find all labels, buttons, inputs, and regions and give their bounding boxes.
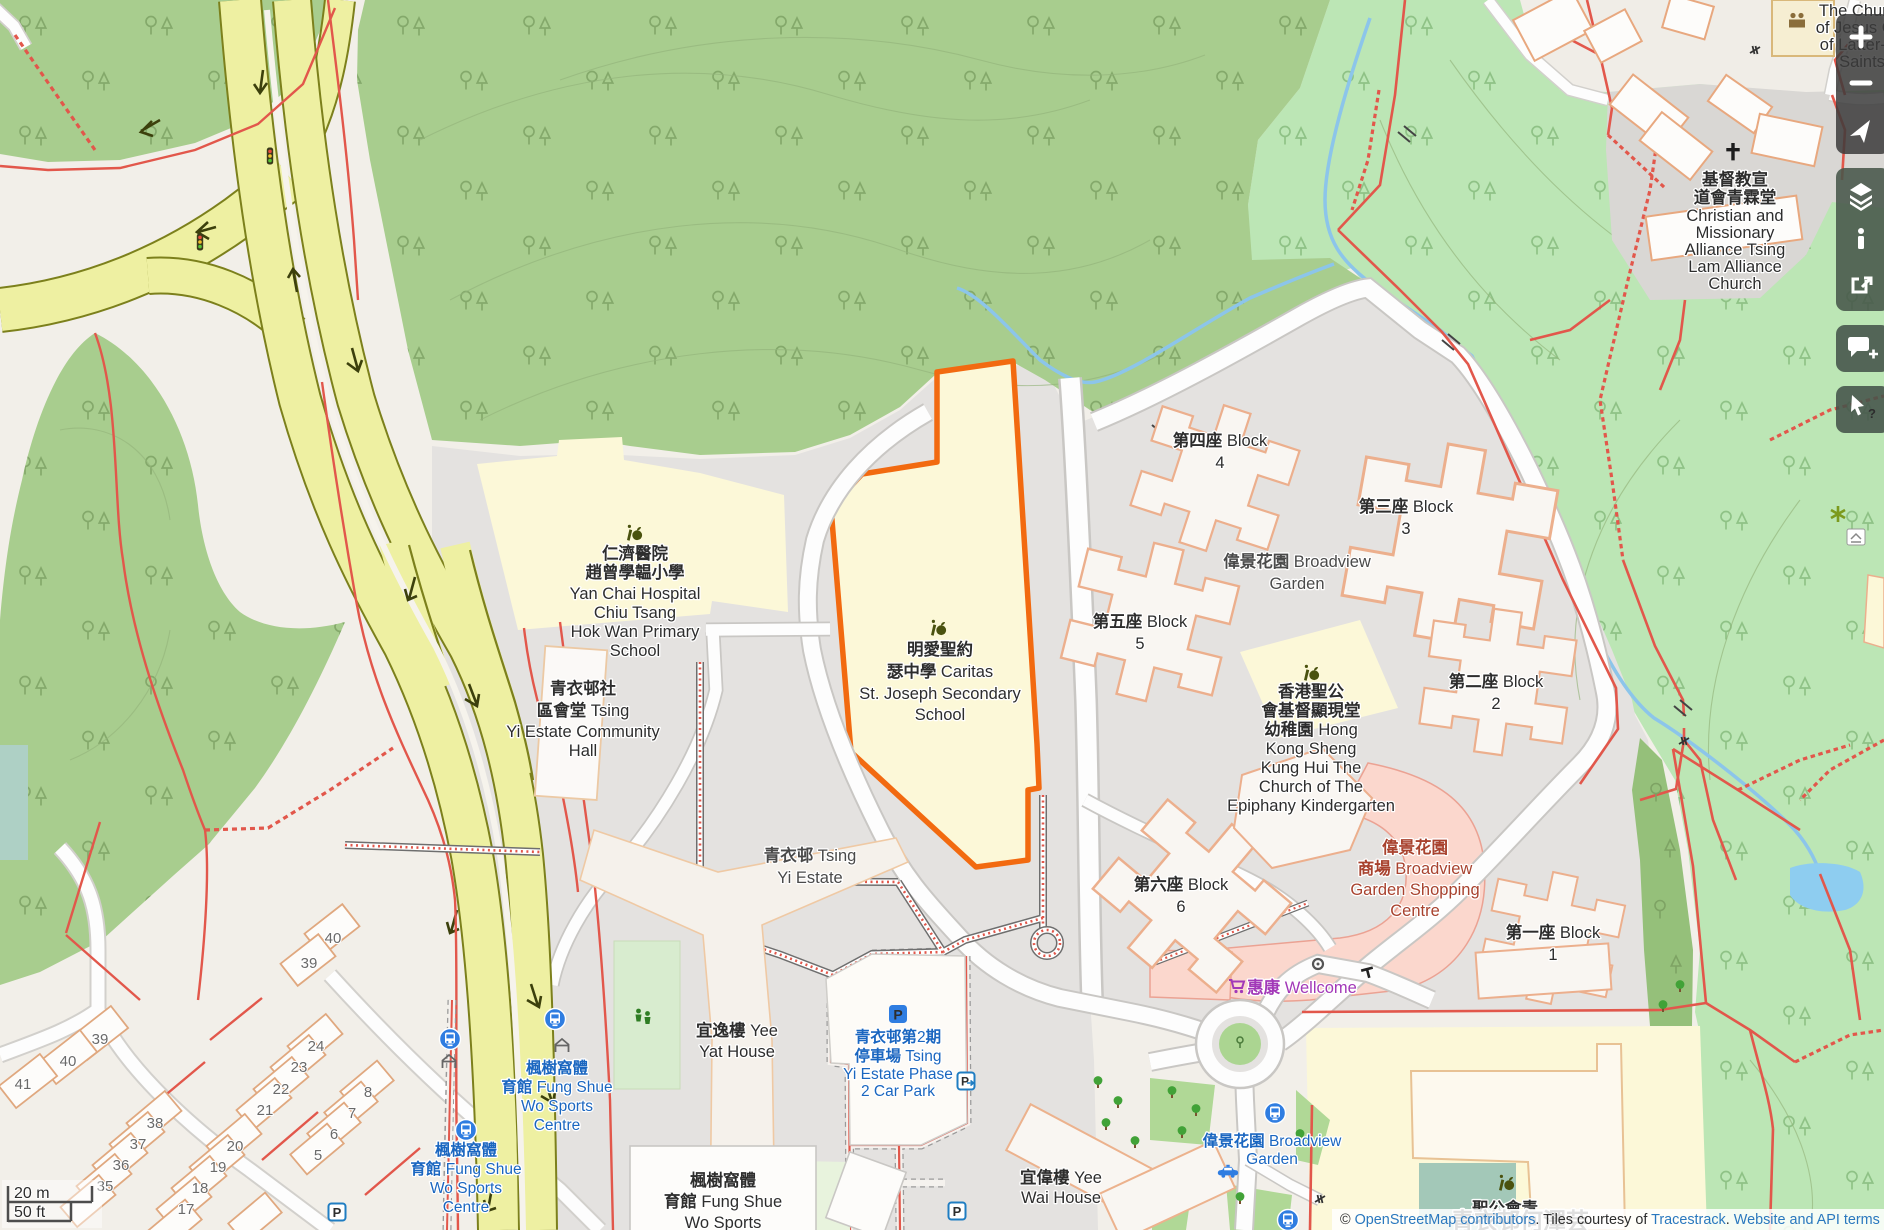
svg-text:楓樹窩體: 楓樹窩體 bbox=[690, 1170, 757, 1190]
svg-text:第五座 Block: 第五座 Block bbox=[1093, 611, 1188, 631]
svg-text:宜逸樓 Yee: 宜逸樓 Yee bbox=[696, 1020, 778, 1040]
svg-text:4: 4 bbox=[1215, 454, 1224, 472]
svg-text:青衣邨第2期: 青衣邨第2期 bbox=[855, 1027, 941, 1046]
svg-text:宜偉樓 Yee: 宜偉樓 Yee bbox=[1020, 1167, 1102, 1187]
svg-text:青衣邨 Tsing: 青衣邨 Tsing bbox=[764, 845, 857, 865]
svg-text:停車場 Tsing: 停車場 Tsing bbox=[854, 1046, 941, 1065]
svg-text:商場 Broadview: 商場 Broadview bbox=[1358, 858, 1473, 878]
svg-text:8: 8 bbox=[364, 1084, 372, 1101]
svg-text:Centre: Centre bbox=[1390, 902, 1440, 920]
svg-text:20 m: 20 m bbox=[14, 1185, 50, 1202]
svg-text:19: 19 bbox=[210, 1159, 227, 1176]
svg-text:6: 6 bbox=[1176, 898, 1185, 916]
svg-text:© OpenStreetMap contributors.: © OpenStreetMap contributors. Tiles cour… bbox=[1340, 1212, 1880, 1228]
svg-text:基督教宣: 基督教宣 bbox=[1702, 169, 1768, 189]
svg-text:23: 23 bbox=[291, 1059, 308, 1076]
svg-text:18: 18 bbox=[192, 1180, 209, 1197]
svg-text:Hall: Hall bbox=[569, 742, 597, 760]
svg-text:36: 36 bbox=[113, 1157, 130, 1174]
svg-text:7: 7 bbox=[348, 1105, 356, 1122]
svg-text:第二座 Block: 第二座 Block bbox=[1449, 671, 1544, 691]
svg-text:2: 2 bbox=[1491, 695, 1500, 713]
svg-text:Yan Chai Hospital: Yan Chai Hospital bbox=[570, 585, 701, 603]
svg-text:Chiu Tsang: Chiu Tsang bbox=[594, 604, 676, 622]
svg-text:P: P bbox=[961, 1075, 969, 1089]
svg-text:Alliance Tsing: Alliance Tsing bbox=[1685, 241, 1786, 259]
svg-text:第一座 Block: 第一座 Block bbox=[1506, 922, 1601, 942]
svg-text:趙曾學韞小學: 趙曾學韞小學 bbox=[586, 562, 685, 582]
svg-text:育館 Fung Shue: 育館 Fung Shue bbox=[410, 1159, 521, 1178]
svg-text:青衣邨社: 青衣邨社 bbox=[550, 678, 617, 698]
svg-text:Yat House: Yat House bbox=[699, 1043, 775, 1061]
svg-text:38: 38 bbox=[147, 1115, 164, 1132]
svg-text:Lam Alliance: Lam Alliance bbox=[1688, 258, 1782, 276]
svg-text:偉景花園: 偉景花園 bbox=[1382, 837, 1448, 857]
svg-text:Church: Church bbox=[1708, 275, 1761, 293]
svg-text:道會青霖堂: 道會青霖堂 bbox=[1694, 187, 1777, 207]
svg-text:School: School bbox=[610, 642, 660, 660]
svg-text:Garden: Garden bbox=[1269, 575, 1324, 593]
svg-text:Wo Sports: Wo Sports bbox=[430, 1180, 502, 1197]
svg-text:偉景花園 Broadview: 偉景花園 Broadview bbox=[1223, 551, 1371, 571]
svg-text:39: 39 bbox=[92, 1031, 109, 1048]
svg-text:Church of The: Church of The bbox=[1259, 778, 1363, 796]
svg-text:瑟中學 Caritas: 瑟中學 Caritas bbox=[887, 661, 993, 681]
svg-text:明愛聖約: 明愛聖約 bbox=[907, 639, 973, 659]
svg-text:22: 22 bbox=[273, 1081, 290, 1098]
svg-text:Garden Shopping: Garden Shopping bbox=[1350, 881, 1479, 899]
svg-text:Kung Hui The: Kung Hui The bbox=[1261, 759, 1362, 777]
svg-text:Centre: Centre bbox=[443, 1199, 490, 1216]
svg-text:惠康 Wellcome: 惠康 Wellcome bbox=[1247, 977, 1357, 997]
svg-text:20: 20 bbox=[227, 1138, 244, 1155]
svg-text:Yi Estate Phase: Yi Estate Phase bbox=[843, 1066, 953, 1083]
svg-text:香港聖公: 香港聖公 bbox=[1278, 681, 1345, 701]
svg-text:21: 21 bbox=[257, 1102, 274, 1119]
svg-text:?: ? bbox=[1868, 406, 1876, 421]
svg-text:1: 1 bbox=[1548, 946, 1557, 964]
svg-text:St. Joseph Secondary: St. Joseph Secondary bbox=[859, 685, 1021, 703]
svg-text:41: 41 bbox=[15, 1076, 32, 1093]
svg-text:育館 Fung Shue: 育館 Fung Shue bbox=[664, 1191, 782, 1211]
svg-text:育館 Fung Shue: 育館 Fung Shue bbox=[501, 1077, 612, 1096]
svg-text:楓樹窩體: 楓樹窩體 bbox=[435, 1140, 498, 1159]
svg-text:Kong Sheng: Kong Sheng bbox=[1266, 740, 1357, 758]
svg-text:School: School bbox=[915, 706, 965, 724]
svg-text:Christian and: Christian and bbox=[1686, 207, 1783, 225]
svg-text:會基督顯現堂: 會基督顯現堂 bbox=[1262, 700, 1361, 720]
svg-text:3: 3 bbox=[1401, 520, 1410, 538]
svg-text:37: 37 bbox=[130, 1136, 147, 1153]
svg-text:2 Car Park: 2 Car Park bbox=[861, 1083, 935, 1100]
svg-text:幼稚園 Hong: 幼稚園 Hong bbox=[1264, 719, 1358, 739]
svg-text:Wai House: Wai House bbox=[1021, 1189, 1101, 1207]
svg-text:Wo Sports: Wo Sports bbox=[521, 1098, 593, 1115]
svg-text:Wo Sports: Wo Sports bbox=[685, 1214, 762, 1230]
svg-text:5: 5 bbox=[314, 1147, 322, 1164]
svg-text:17: 17 bbox=[178, 1201, 195, 1218]
svg-text:40: 40 bbox=[325, 930, 342, 947]
svg-text:第四座 Block: 第四座 Block bbox=[1173, 430, 1268, 450]
svg-text:39: 39 bbox=[301, 955, 318, 972]
svg-text:區會堂 Tsing: 區會堂 Tsing bbox=[537, 700, 630, 720]
svg-text:5: 5 bbox=[1135, 635, 1144, 653]
svg-text:Missionary: Missionary bbox=[1696, 224, 1776, 242]
svg-text:50 ft: 50 ft bbox=[14, 1204, 46, 1221]
svg-text:Yi Estate Community: Yi Estate Community bbox=[506, 723, 660, 741]
svg-text:6: 6 bbox=[330, 1126, 338, 1143]
svg-text:24: 24 bbox=[308, 1038, 325, 1055]
svg-text:Hok Wan Primary: Hok Wan Primary bbox=[571, 623, 700, 641]
svg-text:40: 40 bbox=[60, 1053, 77, 1070]
svg-text:Yi Estate: Yi Estate bbox=[777, 869, 842, 887]
svg-text:Epiphany Kindergarten: Epiphany Kindergarten bbox=[1227, 797, 1395, 815]
svg-text:偉景花園 Broadview: 偉景花園 Broadview bbox=[1203, 1131, 1342, 1150]
svg-text:第六座 Block: 第六座 Block bbox=[1134, 874, 1229, 894]
svg-text:第三座 Block: 第三座 Block bbox=[1359, 496, 1454, 516]
svg-text:Centre: Centre bbox=[534, 1117, 581, 1134]
svg-text:楓樹窩體: 楓樹窩體 bbox=[526, 1058, 589, 1077]
svg-text:Garden: Garden bbox=[1246, 1151, 1298, 1168]
svg-text:仁濟醫院: 仁濟醫院 bbox=[602, 543, 669, 563]
